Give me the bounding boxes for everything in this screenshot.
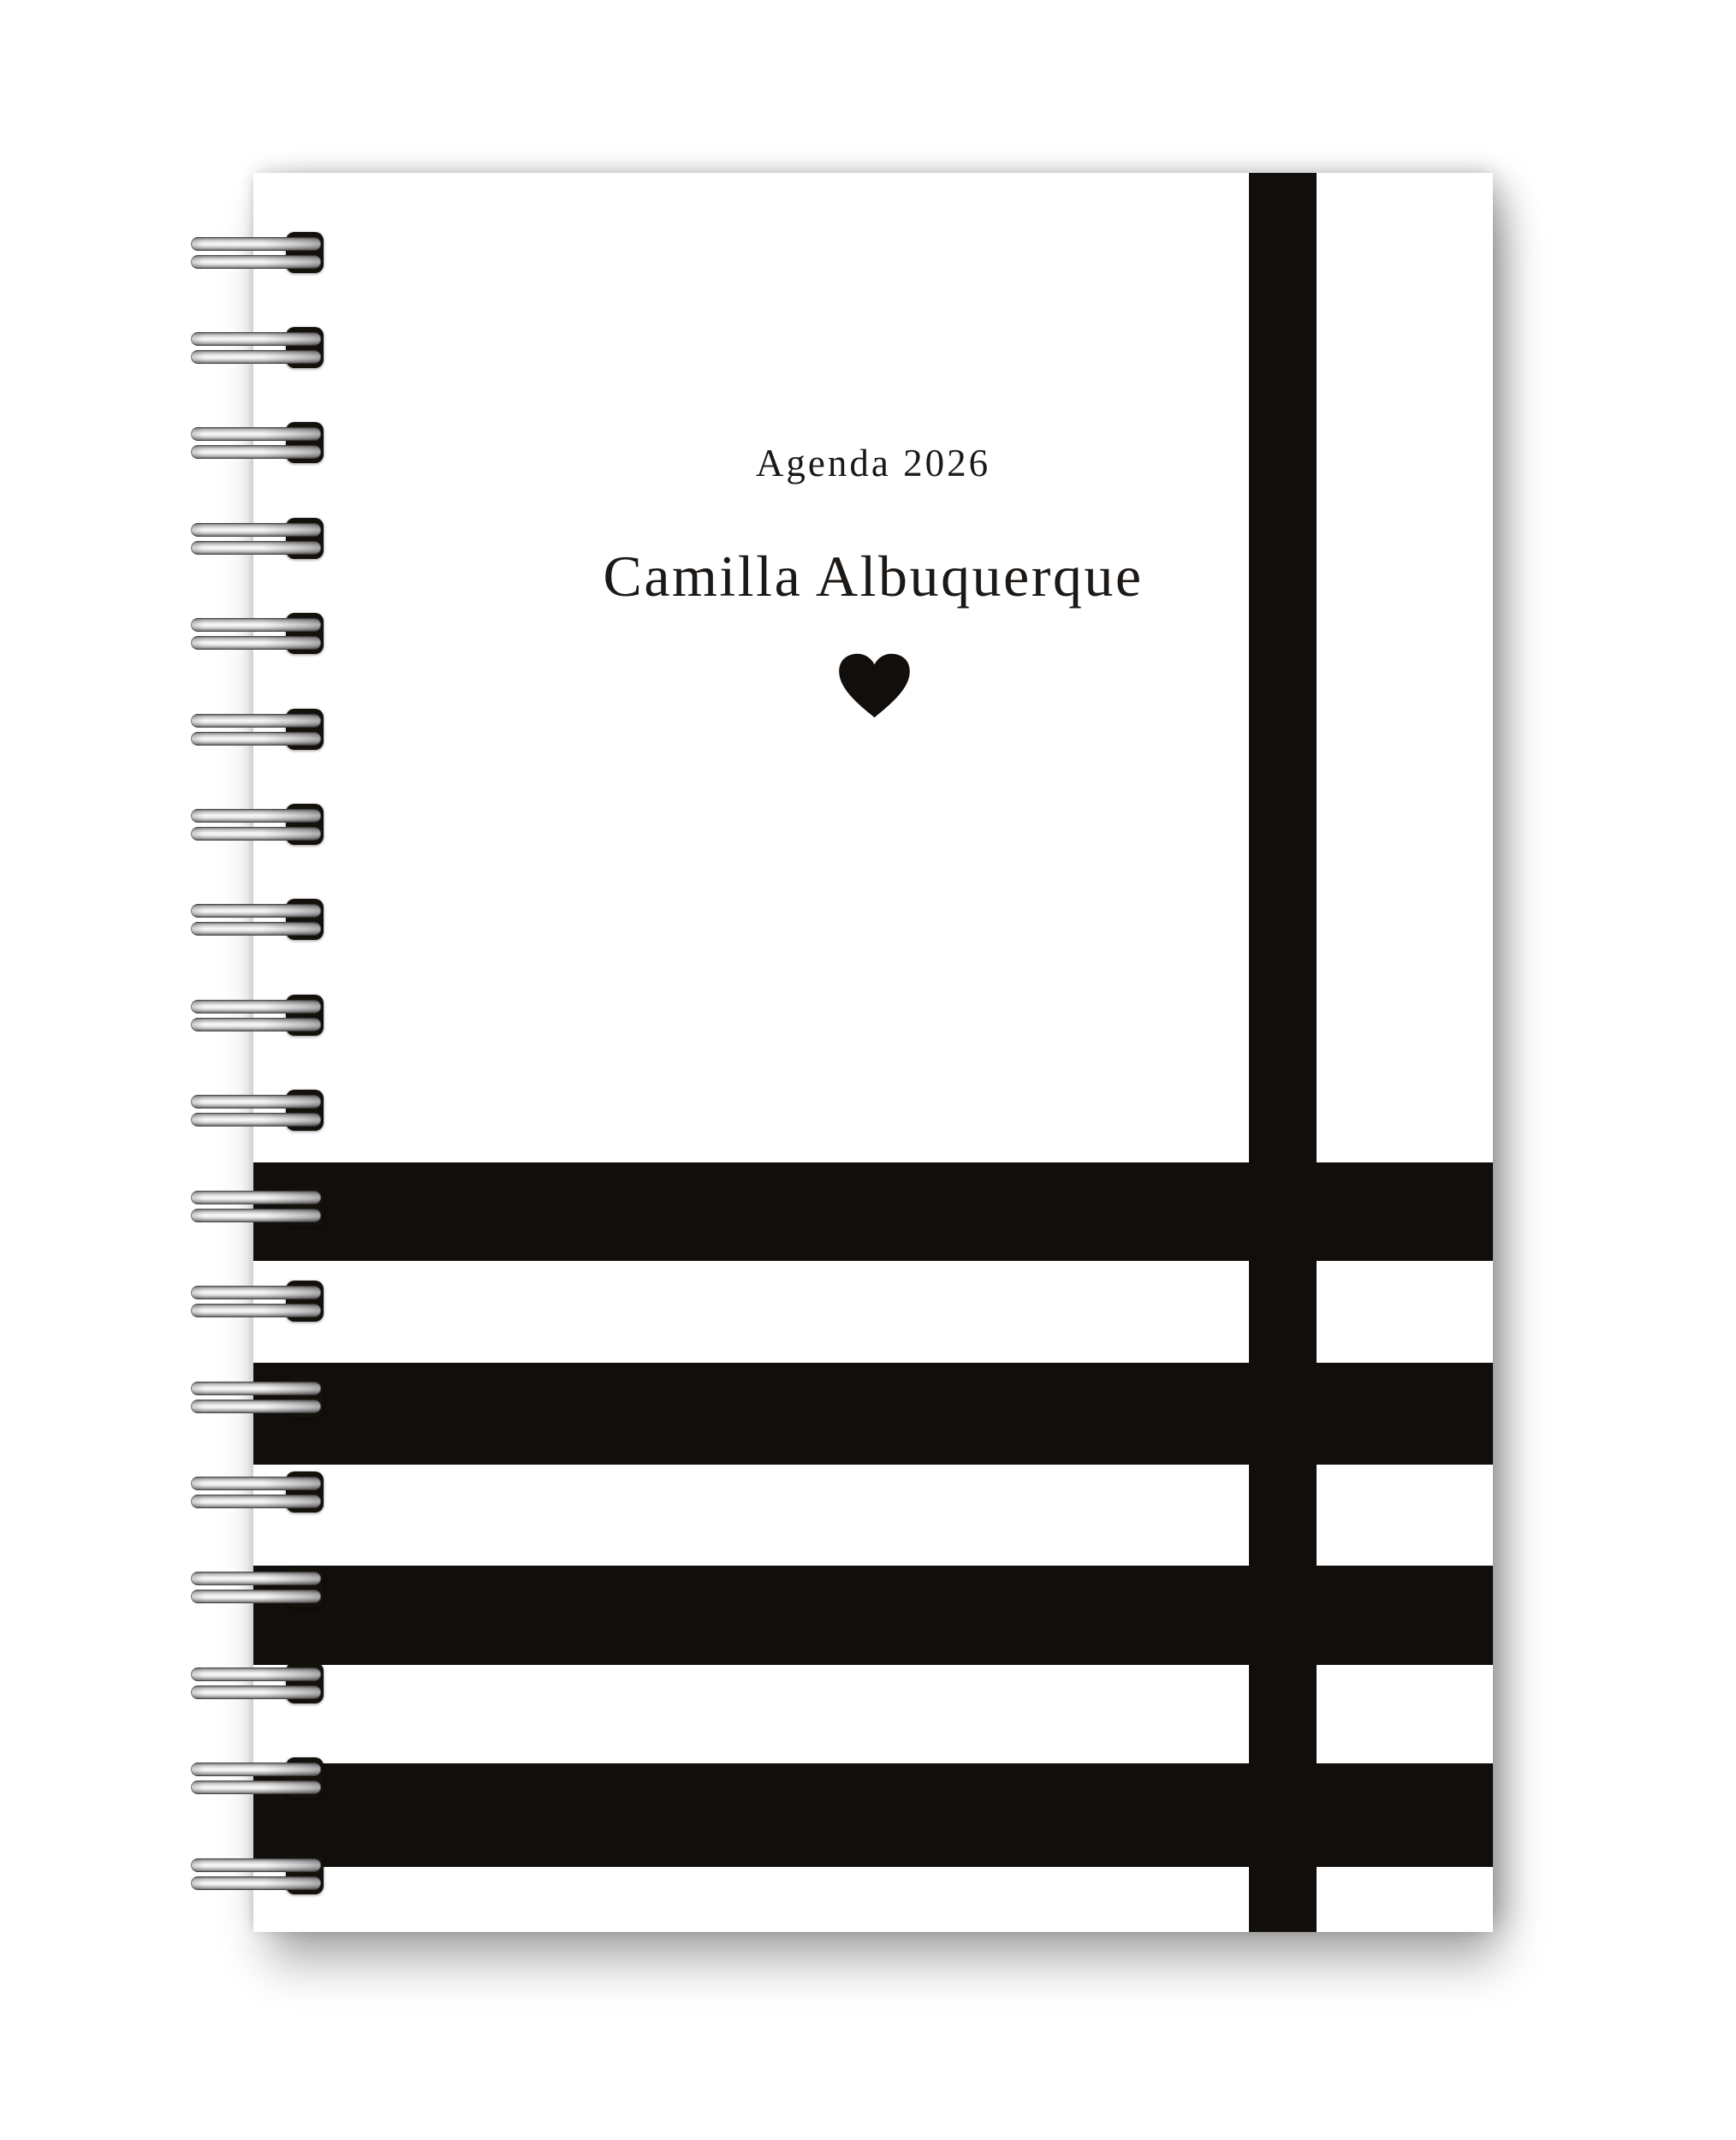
coil-wire-bottom — [191, 1400, 321, 1413]
coil-wire-bottom — [191, 1113, 321, 1126]
horizontal-stripe-2 — [253, 1363, 1493, 1465]
cover-title: Camilla Albuquerque — [253, 543, 1493, 609]
coil-wire-bottom — [191, 1018, 321, 1031]
coil-wire-bottom — [191, 827, 321, 841]
coil-wire-bottom — [191, 445, 321, 459]
coil-wire-top — [191, 523, 321, 537]
coil-wire-top — [191, 1000, 321, 1014]
spiral-coil — [191, 232, 324, 273]
horizontal-stripe-4 — [253, 1763, 1493, 1867]
spiral-coil — [191, 995, 324, 1036]
spiral-coil — [191, 518, 324, 559]
coil-wire-top — [191, 1667, 321, 1681]
horizontal-stripe-1 — [253, 1162, 1493, 1261]
coil-wire-bottom — [191, 1685, 321, 1699]
coil-wire-top — [191, 1858, 321, 1872]
spiral-coil — [191, 1376, 324, 1418]
spiral-coil — [191, 613, 324, 654]
coil-wire-top — [191, 1477, 321, 1490]
coil-wire-top — [191, 237, 321, 251]
spiral-coil — [191, 709, 324, 750]
coil-wire-bottom — [191, 732, 321, 746]
coil-wire-top — [191, 618, 321, 632]
coil-wire-bottom — [191, 1590, 321, 1603]
coil-wire-top — [191, 1191, 321, 1204]
spiral-coil — [191, 1662, 324, 1703]
spiral-coil — [191, 1471, 324, 1513]
coil-wire-top — [191, 1382, 321, 1395]
spiral-coil — [191, 422, 324, 463]
coil-wire-bottom — [191, 1495, 321, 1508]
coil-wire-top — [191, 714, 321, 728]
coil-wire-bottom — [191, 1780, 321, 1794]
coil-wire-bottom — [191, 1209, 321, 1222]
coil-wire-top — [191, 809, 321, 823]
coil-wire-bottom — [191, 255, 321, 269]
vertical-stripe — [1249, 173, 1317, 1932]
coil-wire-top — [191, 904, 321, 918]
coil-wire-bottom — [191, 922, 321, 936]
coil-wire-bottom — [191, 1876, 321, 1890]
coil-wire-top — [191, 332, 321, 346]
cover-subtitle: Agenda 2026 — [253, 442, 1493, 486]
horizontal-stripe-3 — [253, 1566, 1493, 1665]
coil-wire-top — [191, 1763, 321, 1776]
spiral-coil — [191, 804, 324, 845]
spiral-coil — [191, 1853, 324, 1894]
spiral-coil — [191, 1186, 324, 1227]
spiral-coil — [191, 1757, 324, 1798]
spiral-coil — [191, 1566, 324, 1608]
spiral-coil — [191, 1090, 324, 1131]
notebook-mockup: Agenda 2026 Camilla Albuquerque — [0, 0, 1736, 2140]
coil-wire-top — [191, 1286, 321, 1299]
coil-wire-top — [191, 427, 321, 441]
notebook-cover: Agenda 2026 Camilla Albuquerque — [253, 173, 1493, 1932]
spiral-coil — [191, 1281, 324, 1322]
coil-wire-bottom — [191, 636, 321, 650]
coil-wire-top — [191, 1095, 321, 1109]
coil-wire-bottom — [191, 541, 321, 555]
coil-wire-bottom — [191, 350, 321, 364]
coil-wire-bottom — [191, 1304, 321, 1317]
coil-wire-top — [191, 1572, 321, 1585]
heart-icon — [835, 651, 913, 719]
spiral-coil — [191, 899, 324, 940]
spiral-coil — [191, 327, 324, 368]
